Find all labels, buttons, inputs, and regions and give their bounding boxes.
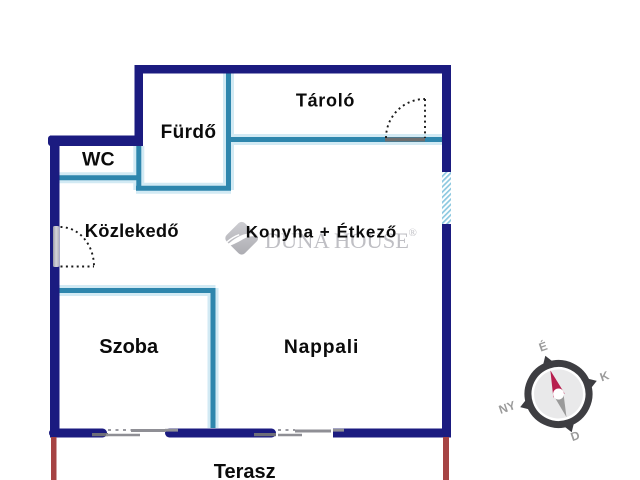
svg-text:Közlekedő: Közlekedő bbox=[85, 220, 179, 241]
svg-text:Nappali: Nappali bbox=[284, 337, 359, 358]
svg-text:Terasz: Terasz bbox=[214, 461, 276, 480]
svg-text:Tároló: Tároló bbox=[296, 91, 355, 111]
svg-text:WC: WC bbox=[82, 149, 115, 171]
svg-text:Konyha + Étkező: Konyha + Étkező bbox=[246, 223, 398, 242]
svg-text:Fürdő: Fürdő bbox=[161, 122, 217, 143]
svg-text:®: ® bbox=[409, 227, 417, 239]
svg-text:Szoba: Szoba bbox=[99, 336, 159, 358]
